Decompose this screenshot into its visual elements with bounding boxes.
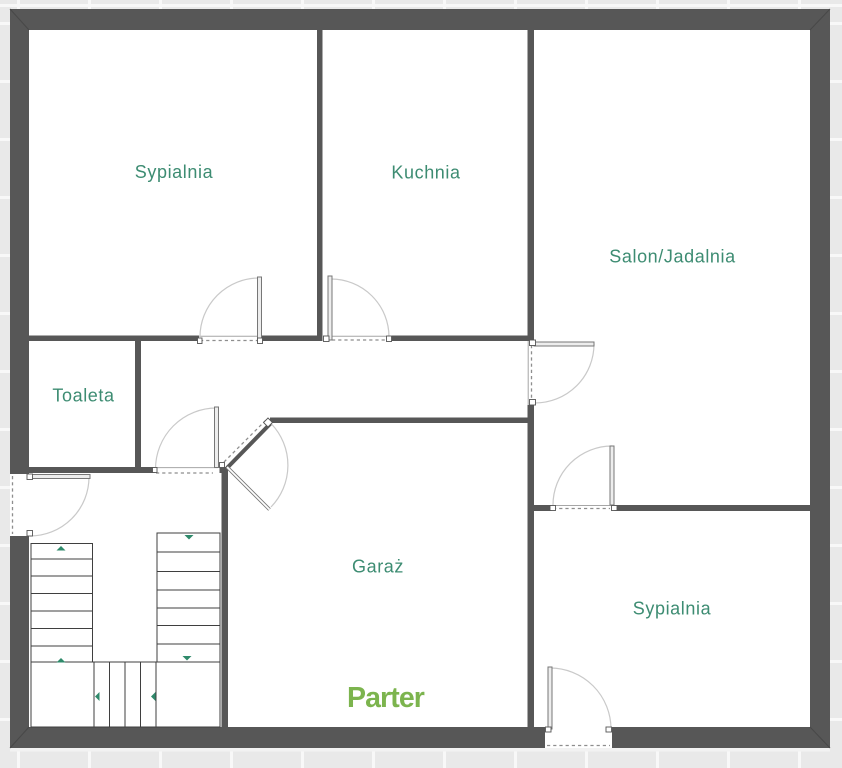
svg-text:Sypialnia: Sypialnia bbox=[633, 599, 712, 619]
svg-text:Parter: Parter bbox=[347, 682, 425, 714]
svg-text:Garaż: Garaż bbox=[352, 557, 404, 577]
svg-text:Toaleta: Toaleta bbox=[52, 386, 115, 406]
svg-text:Sypialnia: Sypialnia bbox=[135, 162, 214, 182]
svg-text:Salon/Jadalnia: Salon/Jadalnia bbox=[609, 247, 736, 267]
svg-text:Kuchnia: Kuchnia bbox=[391, 163, 461, 183]
